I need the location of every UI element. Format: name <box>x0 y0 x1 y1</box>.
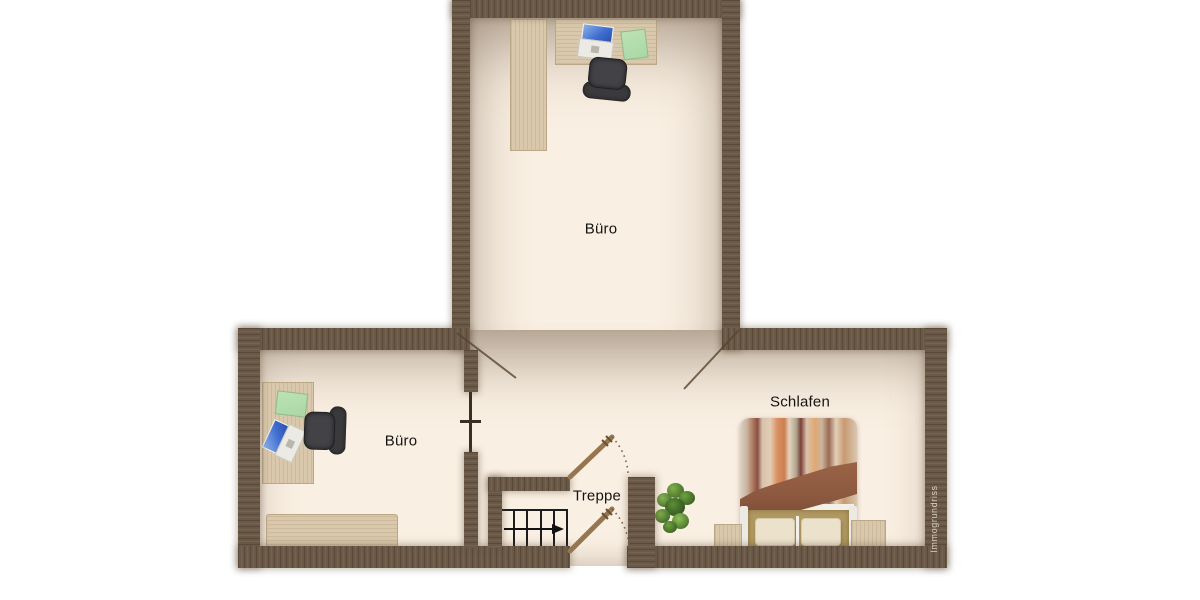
notepad-left-office <box>275 390 309 418</box>
wall-stairs-north <box>488 477 570 491</box>
pillow-left <box>755 518 795 546</box>
wall-top-office-north <box>452 0 740 18</box>
stair-tread <box>515 511 528 551</box>
wall-top-office-west <box>452 0 470 350</box>
floor-plan: Büro Büro Treppe Schlafen Immogrundriss <box>0 0 1200 600</box>
watermark-text: Immogrundriss <box>929 485 939 552</box>
wall-lower-north-left <box>238 328 470 350</box>
wall-lower-south-right <box>627 546 947 568</box>
chair-seat <box>303 411 335 450</box>
wall-lower-north-right <box>722 328 947 350</box>
office-chair-top <box>582 56 634 103</box>
notepad-top-office <box>620 29 648 61</box>
laptop-top-office <box>577 23 615 60</box>
double-bed <box>740 418 857 550</box>
stair-tread <box>542 511 555 551</box>
stair-tread <box>502 511 515 551</box>
wall-hall-east <box>628 477 655 568</box>
stair-tread <box>528 511 541 551</box>
wall-lower-south-left <box>238 546 570 568</box>
plant-leaf <box>663 521 677 533</box>
stair-tread <box>555 511 566 551</box>
room-label-office-left: Büro <box>385 433 418 450</box>
wall-top-office-east <box>722 0 740 350</box>
chair-seat <box>587 56 628 91</box>
wall-opening-tick <box>460 420 481 423</box>
room-label-bedroom: Schlafen <box>770 394 830 411</box>
pillow-divider <box>796 516 799 548</box>
cabinet-top-office <box>510 19 547 151</box>
wall-lower-west <box>238 328 260 568</box>
pillow-right <box>801 518 841 546</box>
wall-partition-stub-upper <box>464 350 478 392</box>
room-label-stairs: Treppe <box>573 488 621 505</box>
room-label-office-top: Büro <box>585 221 618 238</box>
potted-plant <box>655 483 697 535</box>
office-chair-left <box>303 405 347 454</box>
wall-partition-stub-lower <box>464 452 478 548</box>
